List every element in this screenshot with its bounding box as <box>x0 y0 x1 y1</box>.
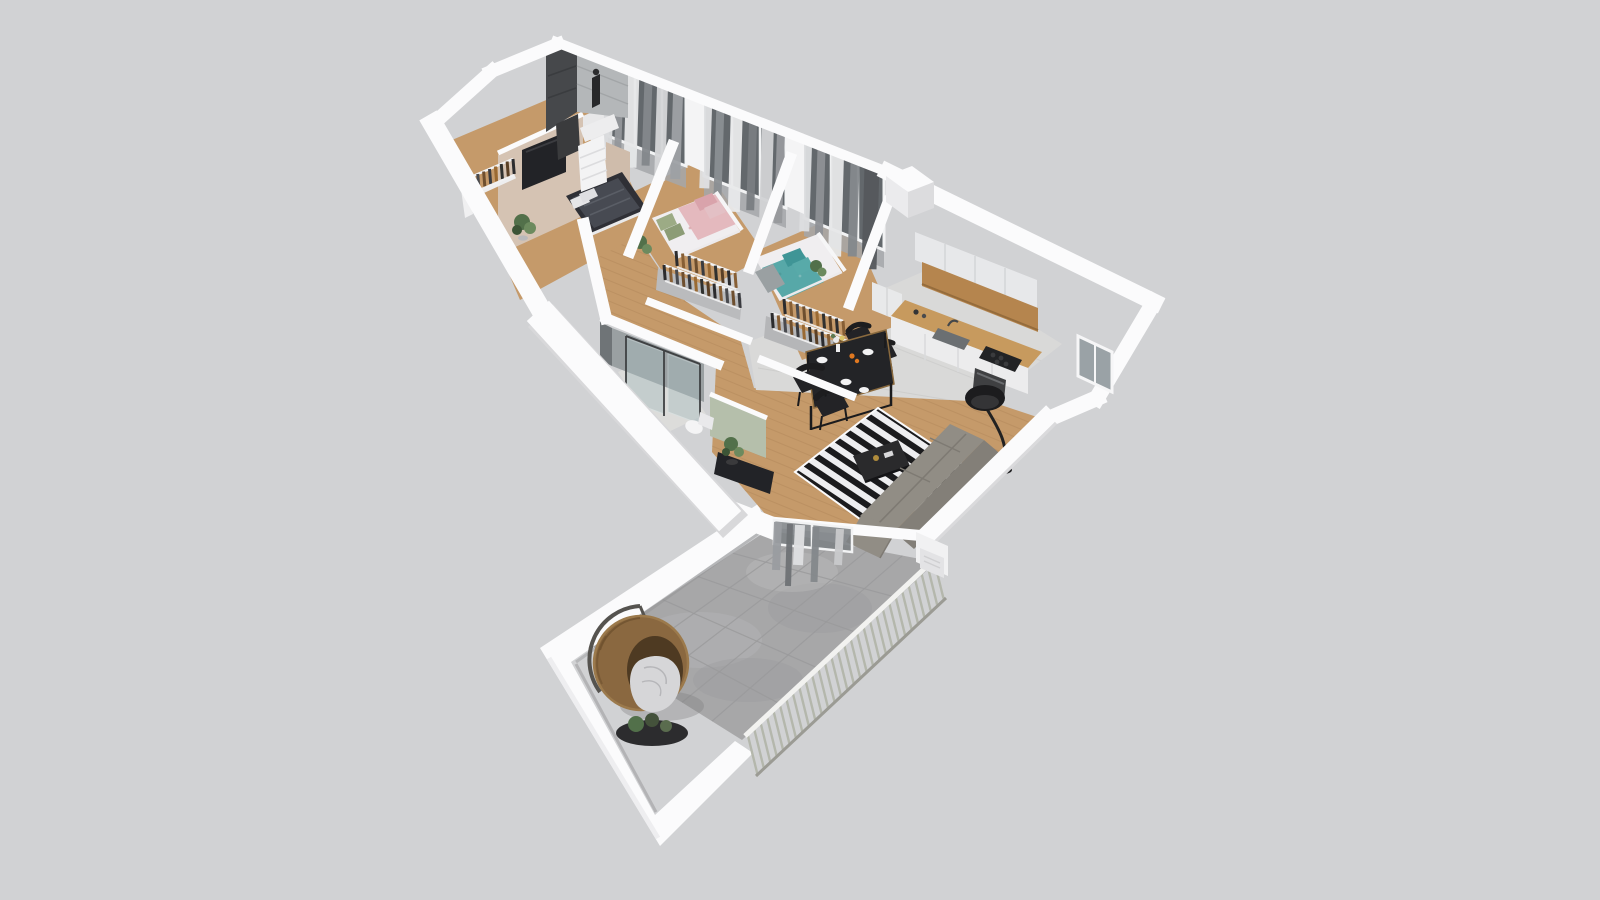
curtain-panel <box>804 139 807 231</box>
burner <box>999 356 1004 361</box>
hanging-clothes <box>683 253 684 268</box>
hanging-clothes <box>513 159 514 174</box>
hanging-clothes <box>689 274 690 289</box>
curtain-panel <box>704 100 707 188</box>
curtain-panel <box>734 112 737 212</box>
hanging-clothes <box>702 279 703 294</box>
curtain-panel <box>838 529 840 565</box>
planter-greens <box>660 720 672 732</box>
hanging-clothes <box>728 271 729 286</box>
hanging-clothes <box>739 293 740 308</box>
lamp-shade-inner <box>971 395 999 409</box>
hanging-clothes <box>823 314 824 329</box>
hanging-clothes <box>785 318 786 333</box>
plant-leaves <box>722 448 730 456</box>
hanging-clothes <box>843 321 844 336</box>
hanging-clothes <box>836 319 837 334</box>
hanging-clothes <box>676 251 677 266</box>
plant-pot <box>726 459 738 465</box>
hanging-clothes <box>689 256 690 271</box>
hanging-clothes <box>670 267 671 282</box>
plant-pot <box>518 235 528 240</box>
hanging-clothes <box>708 281 709 296</box>
curtain-panel <box>646 78 649 166</box>
hanging-clothes <box>797 304 798 319</box>
hanging-clothes <box>816 329 817 344</box>
hanging-clothes <box>695 277 696 292</box>
burner <box>995 360 1000 365</box>
plate <box>859 387 869 393</box>
planter-greens <box>628 716 644 732</box>
planter-greens <box>645 713 659 727</box>
decor-bowl <box>873 455 879 461</box>
plant-leaves <box>734 447 744 457</box>
hanging-clothes <box>791 320 792 335</box>
plant-leaves <box>524 222 536 234</box>
hanging-clothes <box>722 268 723 283</box>
curtain-panel <box>675 89 678 179</box>
flowers <box>839 335 844 340</box>
hanging-clothes <box>778 315 779 330</box>
plant-leaves <box>512 225 522 235</box>
hanging-clothes <box>727 288 728 303</box>
shower-head <box>593 69 599 75</box>
hanging-clothes <box>804 306 805 321</box>
hanging-clothes <box>677 270 678 285</box>
curtain-panel <box>630 72 633 168</box>
plate <box>863 349 874 355</box>
hanging-clothes <box>714 284 715 299</box>
counter-jar <box>913 309 918 314</box>
plant-leaves <box>818 268 827 277</box>
hanging-clothes <box>709 263 710 278</box>
hanging-clothes <box>683 272 684 287</box>
apartment-3d-svg <box>0 0 1600 900</box>
burner <box>991 353 996 358</box>
hanging-clothes <box>715 266 716 281</box>
hanging-clothes <box>797 322 798 337</box>
hanging-clothes <box>830 316 831 331</box>
candle-orange <box>849 353 854 358</box>
hanging-clothes <box>817 311 818 326</box>
hanging-clothes <box>822 332 823 347</box>
hanging-clothes <box>791 301 792 316</box>
curtain-panel <box>835 151 838 256</box>
curtain-panel <box>717 105 720 200</box>
curtain-panel <box>852 158 855 256</box>
hanging-clothes <box>501 164 502 179</box>
counter-jar <box>922 314 926 318</box>
curtain-panel <box>819 145 822 245</box>
hanging-clothes <box>507 162 508 177</box>
burner <box>1004 362 1009 367</box>
hanging-clothes <box>664 265 665 280</box>
curtain-panel <box>776 522 778 570</box>
shower-glass <box>668 354 700 424</box>
hanging-clothes <box>803 325 804 340</box>
floral-dot <box>689 227 692 230</box>
plate <box>817 357 828 363</box>
curtain-panel <box>750 118 753 210</box>
hanging-clothes <box>733 291 734 306</box>
hanging-clothes <box>784 299 785 314</box>
candle-orange <box>855 359 859 363</box>
curtain-panel <box>798 525 800 565</box>
flowers <box>831 334 835 338</box>
hanging-clothes <box>484 172 485 187</box>
hanging-clothes <box>735 273 736 288</box>
curtain-panel <box>814 527 816 582</box>
hanging-clothes <box>810 309 811 324</box>
plant-leaves <box>642 244 652 254</box>
floor-plan-render <box>0 0 1600 900</box>
hanging-clothes <box>495 167 496 182</box>
plate <box>841 379 852 385</box>
hanging-clothes <box>810 327 811 342</box>
hanging-clothes <box>772 313 773 328</box>
curtain-panel <box>788 524 790 586</box>
vase <box>836 344 840 352</box>
hanging-clothes <box>490 169 491 184</box>
shower-column <box>592 74 600 108</box>
hanging-clothes <box>702 261 703 276</box>
hanging-clothes <box>720 286 721 301</box>
floral-dot <box>799 275 802 278</box>
hanging-clothes <box>696 258 697 273</box>
